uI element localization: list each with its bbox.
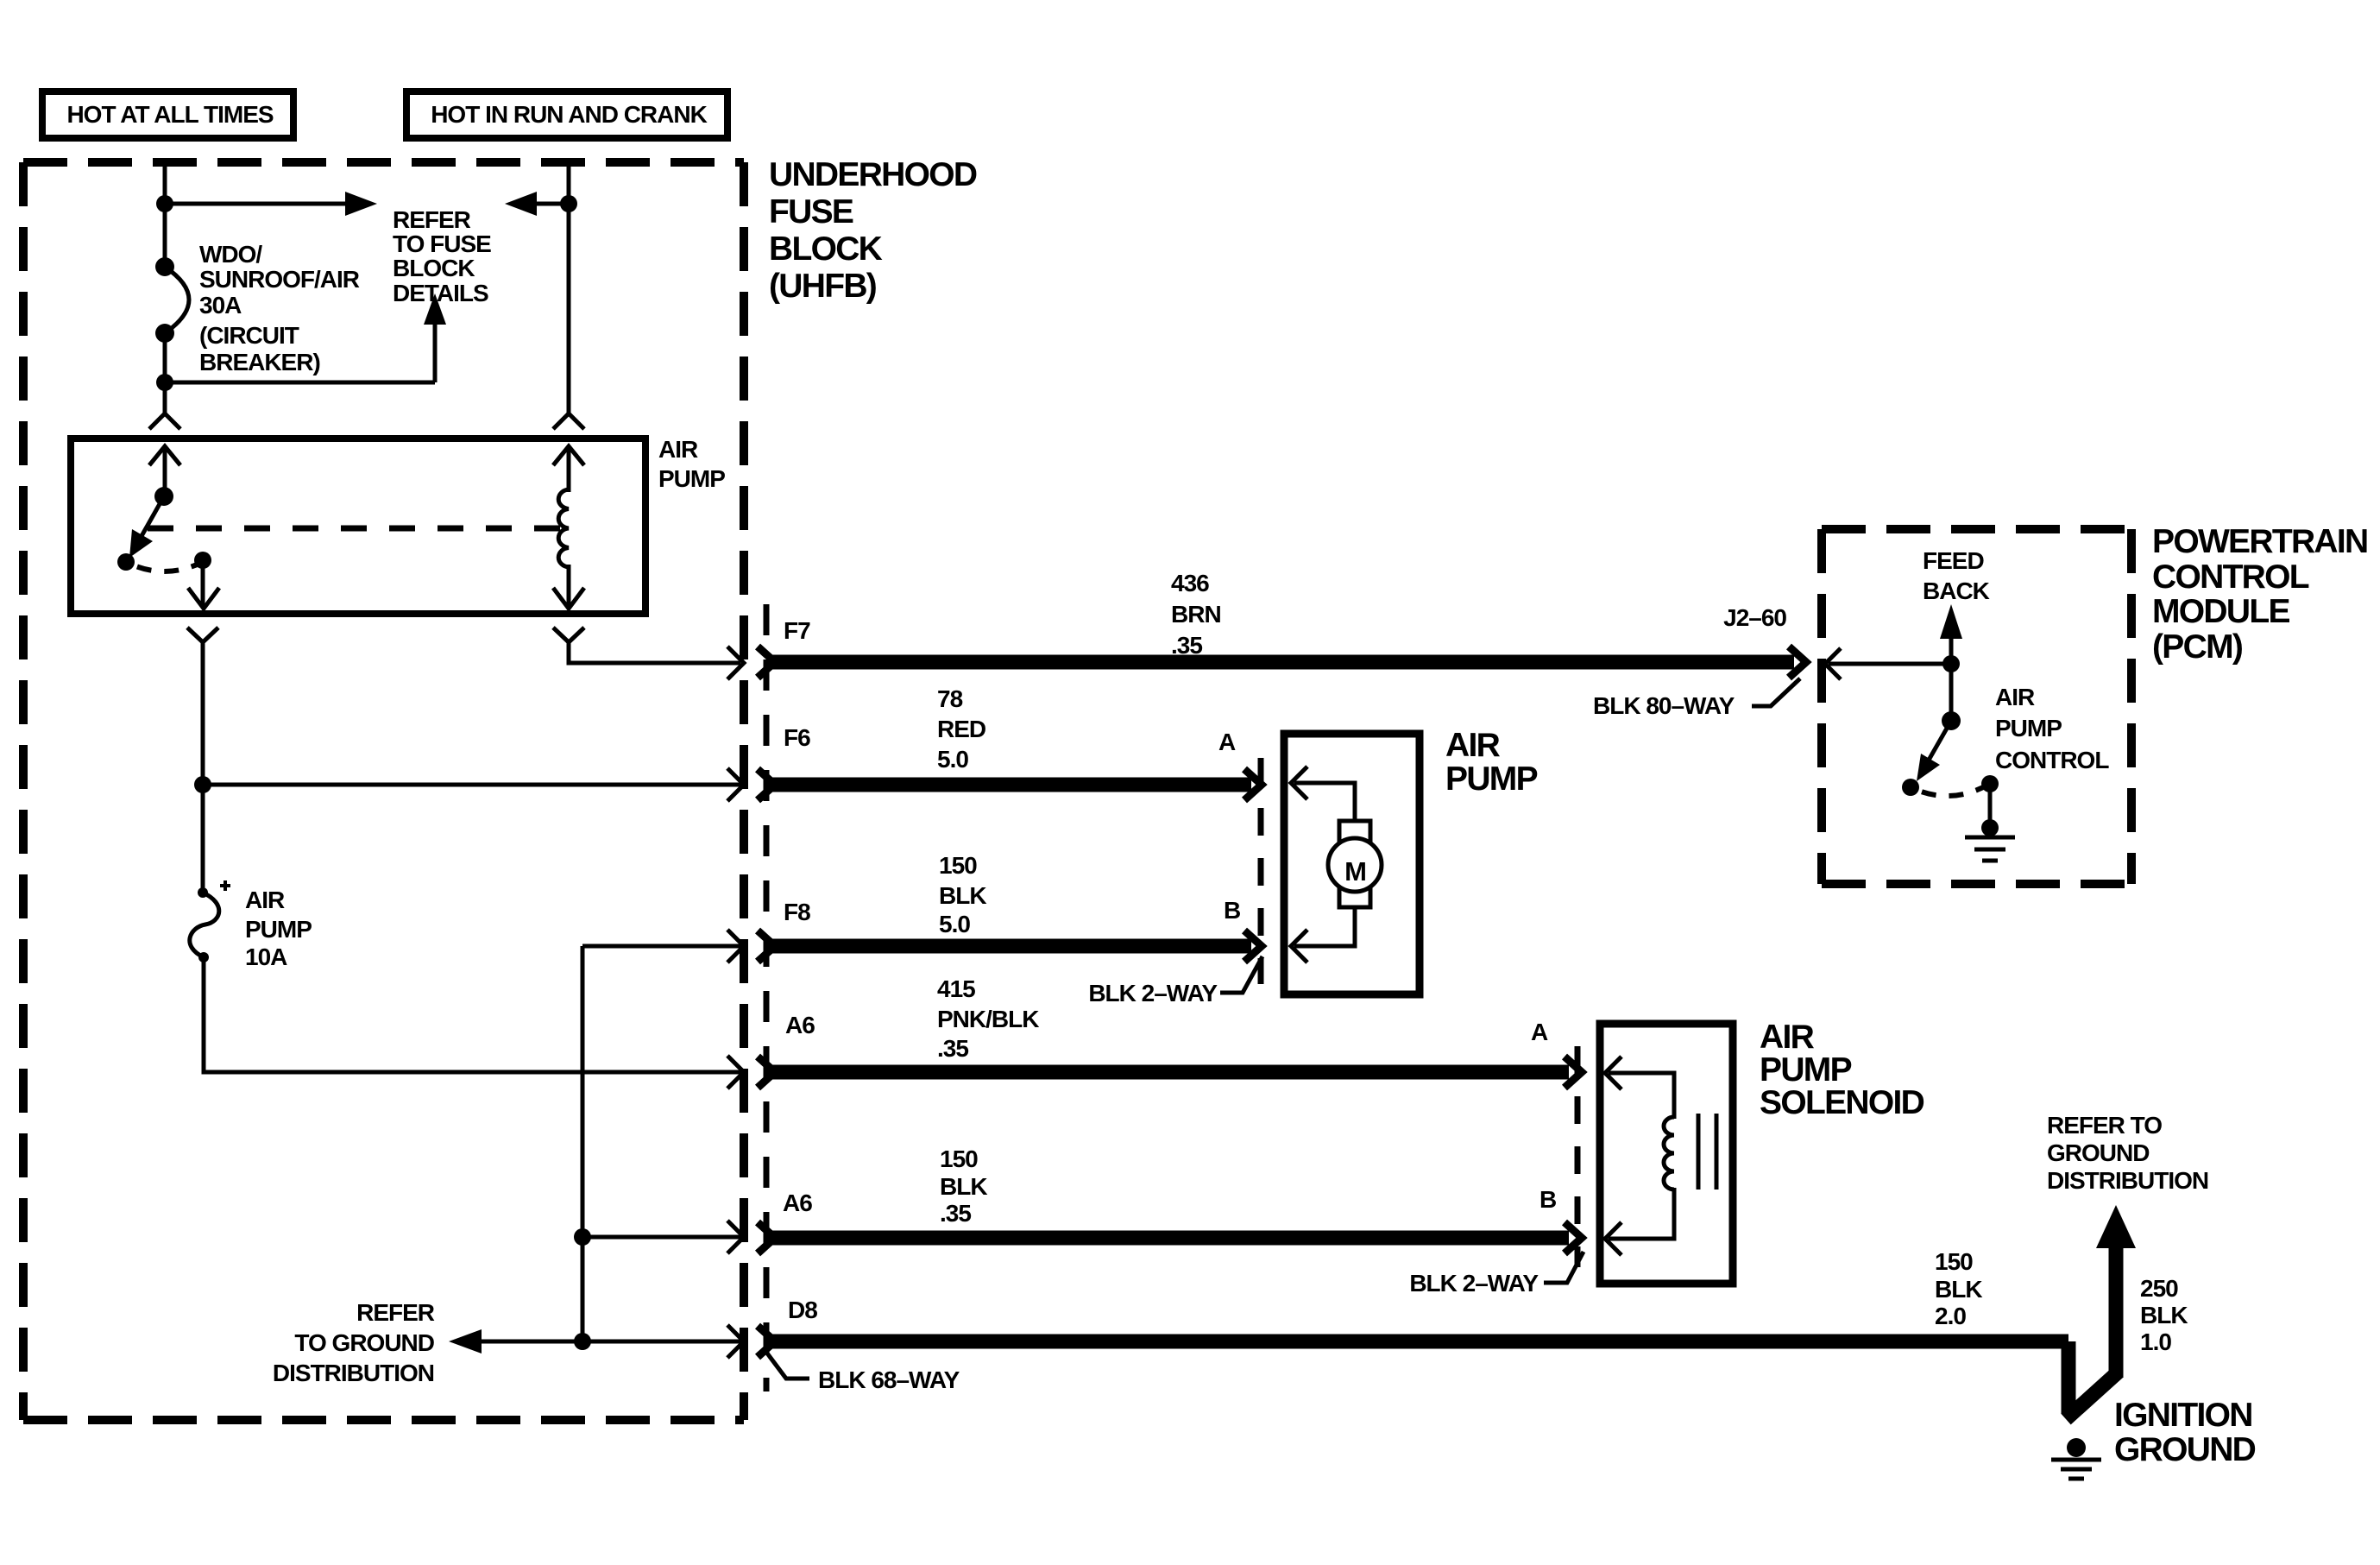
svg-text:AIR: AIR: [1445, 727, 1501, 764]
svg-text:PUMP: PUMP: [1995, 715, 2062, 741]
svg-text:REFER: REFER: [393, 206, 471, 233]
svg-text:F6: F6: [784, 724, 810, 751]
svg-text:BLK 2–WAY: BLK 2–WAY: [1088, 980, 1218, 1007]
svg-text:BRN: BRN: [1171, 601, 1221, 628]
svg-text:A: A: [1218, 729, 1236, 755]
svg-text:(CIRCUIT: (CIRCUIT: [199, 322, 299, 349]
svg-text:30A: 30A: [199, 292, 242, 319]
svg-text:CONTROL: CONTROL: [2152, 558, 2309, 596]
svg-text:150: 150: [1935, 1248, 1973, 1275]
svg-text:REFER TO: REFER TO: [2047, 1112, 2162, 1139]
svg-text:RED: RED: [937, 716, 986, 742]
svg-text:REFER: REFER: [356, 1299, 435, 1326]
svg-text:A6: A6: [785, 1012, 815, 1038]
svg-text:GROUND: GROUND: [2047, 1139, 2150, 1166]
svg-text:150: 150: [940, 1145, 978, 1172]
svg-text:415: 415: [937, 975, 975, 1002]
svg-text:BLK: BLK: [939, 882, 986, 909]
svg-text:(UHFB): (UHFB): [769, 268, 877, 305]
svg-text:PUMP: PUMP: [658, 465, 725, 492]
svg-text:AIR: AIR: [1760, 1019, 1815, 1056]
svg-text:BLK: BLK: [2140, 1302, 2188, 1328]
svg-text:BLOCK: BLOCK: [393, 255, 475, 281]
svg-text:FUSE: FUSE: [769, 193, 853, 230]
svg-text:AIR: AIR: [1995, 684, 2035, 710]
svg-text:.35: .35: [937, 1035, 968, 1062]
svg-text:DISTRIBUTION: DISTRIBUTION: [273, 1360, 434, 1386]
svg-text:FEED: FEED: [1923, 547, 1984, 574]
svg-text:PUMP: PUMP: [1760, 1051, 1852, 1089]
svg-text:D8: D8: [788, 1297, 817, 1323]
svg-text:150: 150: [939, 852, 977, 879]
svg-text:BLK 68–WAY: BLK 68–WAY: [818, 1366, 960, 1393]
svg-text:436: 436: [1171, 570, 1209, 596]
svg-text:BLOCK: BLOCK: [769, 230, 883, 268]
svg-text:(PCM): (PCM): [2152, 628, 2243, 666]
svg-text:J2–60: J2–60: [1723, 604, 1786, 631]
svg-text:BREAKER): BREAKER): [199, 349, 320, 375]
svg-text:.35: .35: [1171, 632, 1202, 659]
svg-text:IGNITION: IGNITION: [2114, 1397, 2252, 1434]
svg-text:.35: .35: [940, 1200, 971, 1227]
svg-text:M: M: [1344, 856, 1367, 887]
svg-text:HOT AT ALL TIMES: HOT AT ALL TIMES: [66, 101, 273, 128]
svg-text:BLK: BLK: [1935, 1276, 1982, 1303]
svg-text:5.0: 5.0: [937, 746, 968, 773]
svg-text:10A: 10A: [245, 943, 287, 970]
svg-text:TO FUSE: TO FUSE: [393, 230, 491, 257]
svg-text:B: B: [1539, 1186, 1556, 1213]
svg-text:AIR: AIR: [658, 436, 698, 463]
svg-text:PNK/BLK: PNK/BLK: [937, 1006, 1039, 1032]
svg-text:BACK: BACK: [1923, 577, 1990, 604]
svg-text:WDO/: WDO/: [199, 241, 262, 268]
svg-text:AIR: AIR: [245, 887, 285, 913]
svg-text:PUMP: PUMP: [1445, 760, 1538, 798]
svg-text:PUMP: PUMP: [245, 916, 312, 943]
svg-text:MODULE: MODULE: [2152, 593, 2289, 630]
svg-text:SUNROOF/AIR: SUNROOF/AIR: [199, 266, 360, 293]
svg-text:F7: F7: [784, 617, 810, 644]
svg-text:A: A: [1531, 1019, 1548, 1045]
svg-text:POWERTRAIN: POWERTRAIN: [2152, 523, 2368, 560]
svg-text:A6: A6: [783, 1190, 812, 1216]
svg-text:DETAILS: DETAILS: [393, 280, 488, 306]
svg-text:1.0: 1.0: [2140, 1328, 2171, 1355]
svg-text:B: B: [1224, 897, 1240, 924]
svg-text:HOT IN RUN AND CRANK: HOT IN RUN AND CRANK: [431, 101, 707, 128]
svg-text:5.0: 5.0: [939, 911, 970, 937]
svg-text:UNDERHOOD: UNDERHOOD: [769, 156, 977, 193]
svg-text:CONTROL: CONTROL: [1995, 747, 2109, 773]
svg-text:BLK: BLK: [940, 1173, 987, 1200]
svg-text:BLK 2–WAY: BLK 2–WAY: [1409, 1270, 1539, 1297]
svg-text:BLK 80–WAY: BLK 80–WAY: [1593, 692, 1735, 719]
svg-text:DISTRIBUTION: DISTRIBUTION: [2047, 1167, 2208, 1194]
svg-text:TO GROUND: TO GROUND: [294, 1329, 434, 1356]
svg-text:GROUND: GROUND: [2114, 1431, 2256, 1468]
svg-text:78: 78: [937, 685, 963, 712]
svg-text:2.0: 2.0: [1935, 1303, 1966, 1329]
svg-text:F8: F8: [784, 899, 810, 925]
svg-text:250: 250: [2140, 1275, 2178, 1302]
svg-text:SOLENOID: SOLENOID: [1760, 1084, 1924, 1121]
